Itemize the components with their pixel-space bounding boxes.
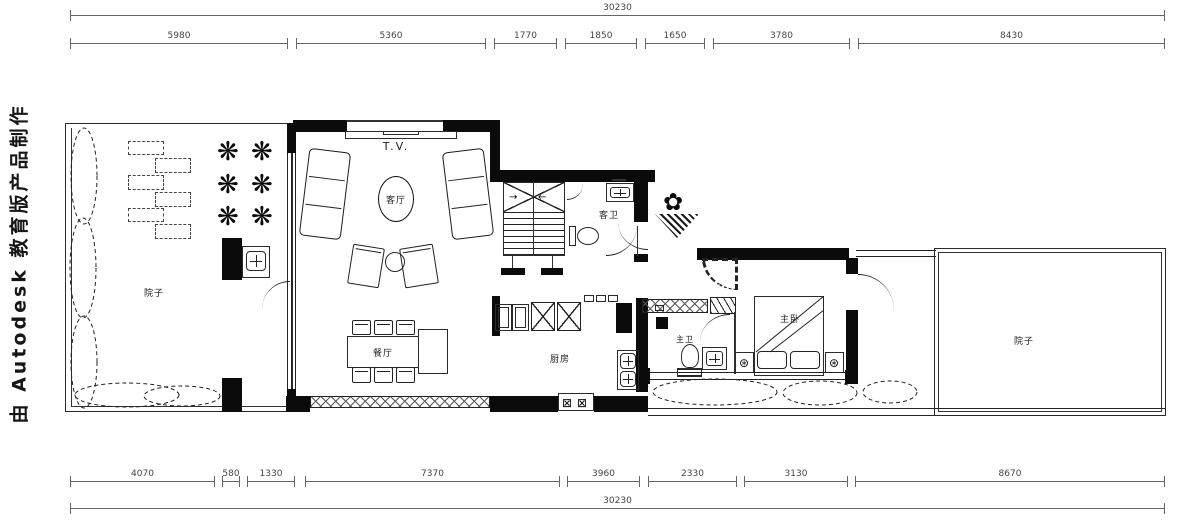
dining-chair bbox=[374, 367, 393, 383]
stepping-stone bbox=[128, 141, 164, 155]
pillow bbox=[757, 351, 787, 369]
planter-pot bbox=[655, 214, 699, 238]
room-label-guest-bath: 客卫 bbox=[594, 208, 624, 221]
autodesk-watermark: 由 Autodesk 教育版产品制作 bbox=[5, 94, 32, 434]
wall bbox=[541, 268, 563, 275]
dining-chair bbox=[352, 320, 371, 335]
dining-cabinet bbox=[418, 329, 448, 374]
stepping-stone bbox=[128, 175, 164, 190]
wall bbox=[287, 123, 296, 153]
entry-basin bbox=[246, 251, 266, 271]
wardrobe bbox=[642, 299, 708, 313]
kitchen-cabinet bbox=[512, 304, 529, 331]
stair-treads bbox=[503, 212, 565, 256]
tree-icon: ❋ bbox=[217, 172, 239, 198]
fence bbox=[856, 250, 936, 257]
wall bbox=[846, 258, 858, 274]
tv-set bbox=[383, 131, 419, 135]
room-label-tv: T.V. bbox=[376, 140, 416, 153]
guest-bath-toilet bbox=[569, 226, 576, 246]
wall bbox=[594, 396, 648, 412]
dimension-segment: 580 bbox=[222, 481, 240, 482]
nightstand: ⊛ bbox=[735, 352, 754, 373]
bed-fold-lines bbox=[754, 296, 824, 354]
dimension-segment: 1850 bbox=[565, 43, 637, 44]
stepping-stone bbox=[155, 158, 191, 173]
stepping-stone bbox=[155, 192, 191, 207]
wall bbox=[500, 170, 655, 182]
room-label-master-bath: 主卫 bbox=[670, 334, 700, 345]
stair-divider bbox=[533, 182, 534, 256]
wall bbox=[490, 396, 558, 412]
stepping-stone bbox=[128, 208, 164, 222]
tap bbox=[612, 179, 626, 181]
room-label-master-bed: 主卧 bbox=[772, 312, 808, 325]
dimension-segment: 3960 bbox=[567, 481, 640, 482]
armchair bbox=[399, 244, 439, 289]
range-hood bbox=[584, 295, 594, 302]
kitchen-appliance bbox=[557, 302, 581, 331]
kitchen-sink bbox=[617, 350, 639, 390]
stove: ⊠ ⊠ bbox=[558, 393, 594, 411]
refrigerator bbox=[616, 303, 632, 333]
dimension-segment: 3780 bbox=[713, 43, 850, 44]
tree-icon: ❋ bbox=[251, 204, 273, 230]
wall-line bbox=[347, 120, 443, 122]
wall bbox=[490, 120, 500, 182]
master-bath-toilet bbox=[681, 344, 699, 368]
dimension-segment: 1650 bbox=[645, 43, 705, 44]
door-arc bbox=[858, 274, 894, 310]
window-strip bbox=[287, 153, 296, 389]
dimension-segment: 3130 bbox=[744, 481, 848, 482]
nightstand: ⊛ bbox=[825, 352, 844, 373]
tree-icon: ❋ bbox=[251, 172, 273, 198]
tree-icon: ❋ bbox=[217, 139, 239, 165]
burner-icon: ⊠ bbox=[577, 397, 587, 409]
room-label-kitchen: 厨房 bbox=[542, 352, 578, 365]
dimension-top-total: 30230 bbox=[70, 15, 1165, 16]
hedge bbox=[72, 380, 222, 410]
dining-chair bbox=[396, 320, 415, 335]
burner-icon: ⊠ bbox=[562, 397, 572, 409]
dimension-segment: 5980 bbox=[70, 43, 288, 44]
pillow bbox=[790, 351, 820, 369]
range-hood bbox=[608, 295, 618, 302]
hedge bbox=[650, 377, 925, 409]
room-label-living: 客厅 bbox=[370, 193, 422, 206]
dining-chair bbox=[352, 367, 371, 383]
lamp-icon: ⊛ bbox=[829, 357, 839, 369]
master-bath-sink bbox=[702, 347, 727, 370]
guest-bath-toilet-bowl bbox=[577, 227, 599, 245]
window-sill-hatch bbox=[310, 396, 490, 408]
guest-bath-sink bbox=[606, 183, 634, 202]
dimension-segment: 4070 bbox=[70, 481, 215, 482]
room-label-yard-left: 院子 bbox=[138, 286, 170, 299]
hanger-closet bbox=[710, 297, 736, 314]
wall bbox=[290, 396, 310, 412]
armchair bbox=[347, 244, 385, 289]
wall bbox=[640, 368, 650, 384]
kitchen-cabinet bbox=[495, 304, 512, 331]
left-sofa bbox=[299, 148, 351, 240]
tree-icon: ❋ bbox=[251, 139, 273, 165]
dimension-segment: 7370 bbox=[305, 481, 560, 482]
door-arc bbox=[702, 258, 738, 290]
stair-arrow-icon: ← bbox=[538, 193, 546, 203]
corner-shelf bbox=[567, 184, 583, 200]
wall bbox=[501, 268, 525, 275]
room-label-yard-right: 院子 bbox=[1008, 334, 1040, 347]
dining-chair bbox=[374, 320, 393, 335]
dimension-segment: 8430 bbox=[858, 43, 1165, 44]
tree-icon: ❋ bbox=[217, 204, 239, 230]
lamp-icon: ⊛ bbox=[739, 357, 749, 369]
dimension-segment: 2330 bbox=[648, 481, 737, 482]
dimension-bottom-total: 30230 bbox=[70, 508, 1165, 509]
wall bbox=[222, 238, 242, 280]
stair-arrow-icon: → bbox=[509, 193, 517, 203]
floor-drain bbox=[656, 317, 668, 329]
dimension-segment: 1770 bbox=[494, 43, 557, 44]
wall bbox=[293, 120, 347, 132]
floor-plan: 由 Autodesk 教育版产品制作 30230 5980 5360 1770 … bbox=[0, 0, 1200, 520]
range-hood bbox=[596, 295, 606, 302]
hedge bbox=[66, 126, 102, 410]
door-arc bbox=[700, 314, 730, 342]
stepping-stone bbox=[155, 224, 191, 239]
kitchen-appliance bbox=[531, 302, 555, 331]
dining-chair bbox=[396, 367, 415, 383]
fixture bbox=[655, 305, 664, 311]
wall bbox=[634, 182, 648, 222]
wall bbox=[222, 378, 242, 412]
dimension-segment: 5360 bbox=[296, 43, 486, 44]
right-sofa bbox=[442, 148, 494, 240]
side-table bbox=[385, 252, 405, 272]
dimension-segment: 8670 bbox=[855, 481, 1165, 482]
room-label-dining: 餐厅 bbox=[365, 346, 401, 359]
yard-right bbox=[934, 248, 1166, 416]
dimension-segment: 1330 bbox=[247, 481, 295, 482]
plant-icon: ✿ bbox=[663, 190, 683, 214]
